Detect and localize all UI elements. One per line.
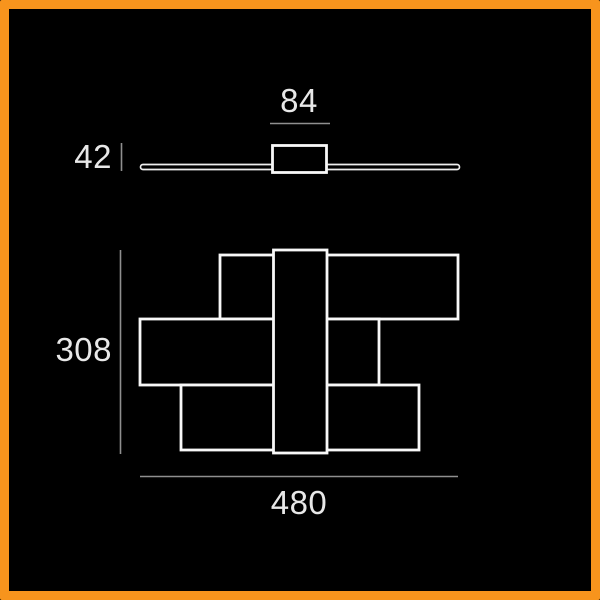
plan-view: 308 480 bbox=[55, 250, 458, 521]
front-view-canopy bbox=[273, 146, 327, 173]
front-view: 84 42 bbox=[74, 82, 459, 175]
lamp-technical-drawing: 84 42 308 480 bbox=[0, 0, 600, 600]
dim-label-308: 308 bbox=[55, 331, 112, 368]
dim-label-42: 42 bbox=[74, 138, 112, 175]
plan-center-column bbox=[274, 250, 328, 453]
dim-label-84: 84 bbox=[280, 82, 318, 119]
plan-top-bar bbox=[220, 255, 458, 319]
dim-label-480: 480 bbox=[271, 484, 328, 521]
plan-middle-bar bbox=[140, 319, 379, 385]
dimension-diagram: 84 42 308 480 bbox=[0, 0, 600, 600]
